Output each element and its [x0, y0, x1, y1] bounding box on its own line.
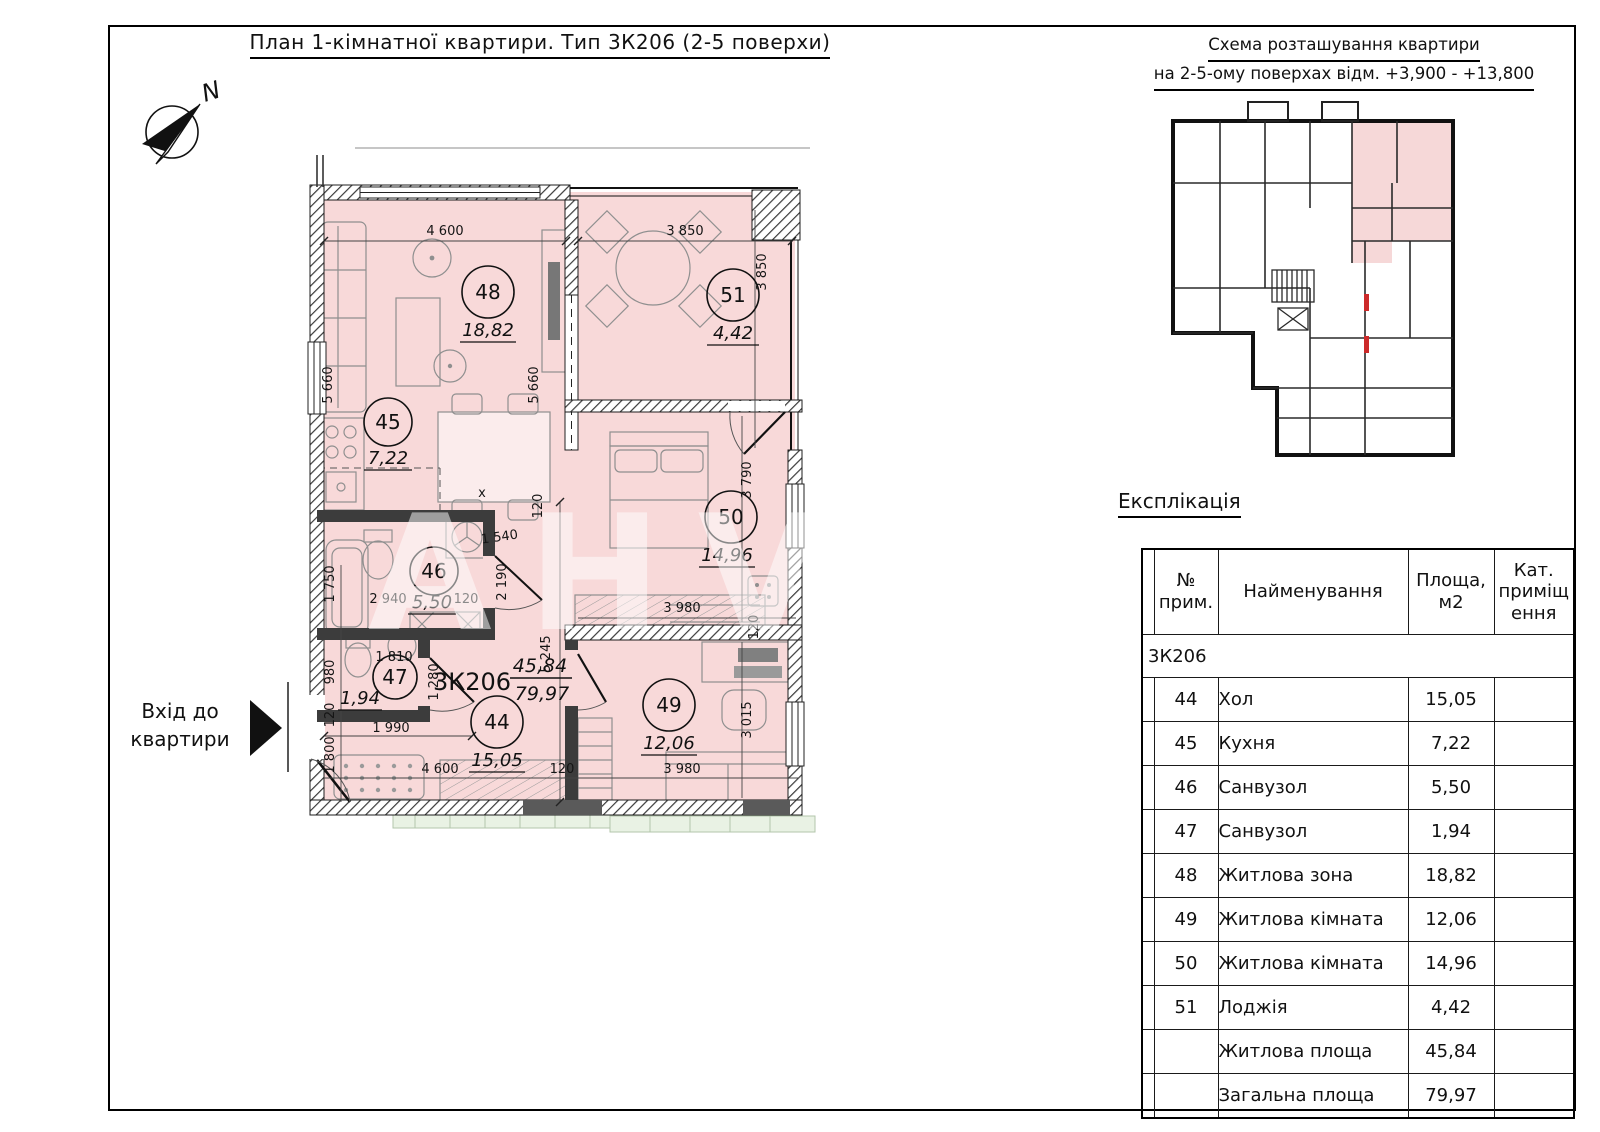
header-name: Найменування	[1218, 549, 1408, 635]
svg-text:14,96: 14,96	[701, 545, 753, 566]
svg-text:980: 980	[323, 660, 338, 685]
dining-table	[438, 412, 550, 502]
svg-text:5 660: 5 660	[321, 366, 336, 403]
cell-category	[1494, 678, 1574, 722]
wall-segment	[743, 800, 790, 815]
cell-no: 47	[1154, 810, 1218, 854]
svg-text:45,84: 45,84	[513, 655, 567, 677]
svg-text:4,42: 4,42	[713, 323, 753, 344]
cell-area: 1,94	[1408, 810, 1494, 854]
svg-text:1,94: 1,94	[340, 688, 380, 709]
svg-text:3 980: 3 980	[663, 601, 700, 616]
svg-text:1 810: 1 810	[375, 650, 412, 665]
header-area: Площа, м2	[1408, 549, 1494, 635]
cell-no: 51	[1154, 986, 1218, 1030]
svg-text:Вхід до: Вхід до	[141, 699, 218, 723]
svg-text:1 800: 1 800	[323, 736, 338, 773]
svg-text:120: 120	[323, 703, 338, 728]
header-no: № прим.	[1154, 549, 1218, 635]
cell-area: 5,50	[1408, 766, 1494, 810]
cell-no: 44	[1154, 678, 1218, 722]
svg-text:46: 46	[421, 559, 446, 583]
schema-stairwell	[1272, 270, 1314, 330]
svg-text:3 850: 3 850	[666, 224, 703, 239]
explication-table: № прим. Найменування Площа, м2 Кат. прим…	[1141, 548, 1575, 1119]
cell-category	[1494, 854, 1574, 898]
schema-tabs	[1248, 102, 1358, 121]
svg-text:45: 45	[375, 410, 400, 434]
svg-text:120: 120	[550, 762, 575, 777]
plan-title: План 1-кімнатної квартири. Тип 3К206 (2-…	[220, 30, 860, 59]
window	[786, 702, 804, 766]
svg-text:51: 51	[720, 283, 745, 307]
wall-segment	[523, 800, 602, 815]
svg-text:1 990: 1 990	[372, 721, 409, 736]
svg-text:3 015: 3 015	[740, 701, 755, 738]
cell-total-name: Житлова площа	[1218, 1030, 1408, 1074]
svg-text:квартири: квартири	[130, 727, 229, 751]
svg-text:x: x	[478, 486, 486, 501]
total-row: Житлова площа 45,84	[1142, 1030, 1574, 1074]
svg-text:120: 120	[747, 615, 762, 640]
schema-title: Схема розташування квартири на 2-5-ому п…	[1118, 33, 1570, 91]
cell-area: 14,96	[1408, 942, 1494, 986]
cell-category	[1494, 942, 1574, 986]
door-opening	[728, 401, 785, 411]
svg-text:3 980: 3 980	[663, 762, 700, 777]
cell-category	[1494, 898, 1574, 942]
total-row: Загальна площа 79,97	[1142, 1074, 1574, 1119]
svg-text:4 600: 4 600	[426, 224, 463, 239]
svg-text:7,22: 7,22	[368, 448, 408, 469]
window	[786, 484, 804, 548]
building-schema	[1160, 88, 1465, 468]
cell-category	[1494, 810, 1574, 854]
cell-area: 12,06	[1408, 898, 1494, 942]
table-header-row: № прим. Найменування Площа, м2 Кат. прим…	[1142, 549, 1574, 635]
cell-name: Санвузол	[1218, 810, 1408, 854]
cell-name: Кухня	[1218, 722, 1408, 766]
header-category: Кат. приміщ ення	[1494, 549, 1574, 635]
cell-area: 18,82	[1408, 854, 1494, 898]
drawing-sheet: План 1-кімнатної квартири. Тип 3К206 (2-…	[0, 0, 1600, 1132]
svg-text:50: 50	[718, 505, 743, 529]
svg-text:1 750: 1 750	[323, 565, 338, 602]
plan-title-text: План 1-кімнатної квартири. Тип 3К206 (2-…	[250, 30, 831, 59]
cell-category	[1494, 1074, 1574, 1119]
cell-area: 4,42	[1408, 986, 1494, 1030]
svg-text:48: 48	[475, 280, 500, 304]
schema-title-line1: Схема розташування квартири	[1208, 33, 1480, 62]
table-row: 49 Житлова кімната 12,06	[1142, 898, 1574, 942]
cell-category	[1494, 1030, 1574, 1074]
header-spacer	[1142, 549, 1154, 635]
svg-text:49: 49	[656, 693, 681, 717]
svg-text:2 190: 2 190	[495, 563, 510, 600]
table-row: 48 Житлова зона 18,82	[1142, 854, 1574, 898]
cell-no: 48	[1154, 854, 1218, 898]
group-code: 3К206	[1142, 635, 1574, 678]
table-row: 44 Хол 15,05	[1142, 678, 1574, 722]
cell-name: Житлова кімната	[1218, 898, 1408, 942]
cell-category	[1494, 986, 1574, 1030]
cell-category	[1494, 766, 1574, 810]
svg-text:4 600: 4 600	[421, 762, 458, 777]
explication-heading: Експлікація	[1118, 489, 1241, 518]
svg-text:5,50: 5,50	[412, 592, 452, 613]
tv	[548, 262, 560, 340]
table-row: 45 Кухня 7,22	[1142, 722, 1574, 766]
north-arrow-icon: N	[142, 76, 224, 164]
table-row: 46 Санвузол 5,50	[1142, 766, 1574, 810]
svg-text:47: 47	[382, 665, 407, 689]
door-opening	[483, 556, 495, 608]
svg-text:5 660: 5 660	[527, 366, 542, 403]
cell-total-area: 45,84	[1408, 1030, 1494, 1074]
svg-text:79,97: 79,97	[515, 683, 569, 705]
explication-heading-text: Експлікація	[1118, 489, 1241, 518]
north-letter: N	[198, 76, 224, 108]
cell-area: 15,05	[1408, 678, 1494, 722]
cell-total-name: Загальна площа	[1218, 1074, 1408, 1119]
svg-text:2 940: 2 940	[369, 592, 406, 607]
entrance-label: Вхід до квартири	[130, 682, 288, 772]
cell-name: Житлова кімната	[1218, 942, 1408, 986]
cell-category	[1494, 722, 1574, 766]
table-row: 50 Житлова кімната 14,96	[1142, 942, 1574, 986]
svg-text:18,82: 18,82	[462, 320, 514, 341]
cell-no: 49	[1154, 898, 1218, 942]
explication-table-wrap: № прим. Найменування Площа, м2 Кат. прим…	[1141, 548, 1575, 1119]
cell-name: Хол	[1218, 678, 1408, 722]
cell-name: Санвузол	[1218, 766, 1408, 810]
cell-name: Житлова зона	[1218, 854, 1408, 898]
svg-text:120: 120	[531, 494, 546, 519]
svg-text:15,05: 15,05	[471, 750, 523, 771]
cell-no: 50	[1154, 942, 1218, 986]
laptop	[738, 648, 778, 662]
floor-plan: 4 600 3 850 5 660 5 660 3 850 3 790 3 01…	[110, 60, 830, 840]
svg-text:12,06: 12,06	[643, 733, 695, 754]
group-row: 3К206	[1142, 635, 1574, 678]
entrance-arrow-icon	[250, 700, 282, 756]
cell-name: Лоджія	[1218, 986, 1408, 1030]
cell-area: 7,22	[1408, 722, 1494, 766]
cell-no: 46	[1154, 766, 1218, 810]
svg-text:3К206: 3К206	[433, 668, 511, 696]
table-row: 51 Лоджія 4,42	[1142, 986, 1574, 1030]
cell-total-area: 79,97	[1408, 1074, 1494, 1119]
table-row: 47 Санвузол 1,94	[1142, 810, 1574, 854]
svg-text:120: 120	[454, 592, 479, 607]
schema-title-line2: на 2-5-ому поверхах відм. +3,900 - +13,8…	[1154, 62, 1534, 91]
cell-no: 45	[1154, 722, 1218, 766]
svg-text:44: 44	[484, 710, 509, 734]
